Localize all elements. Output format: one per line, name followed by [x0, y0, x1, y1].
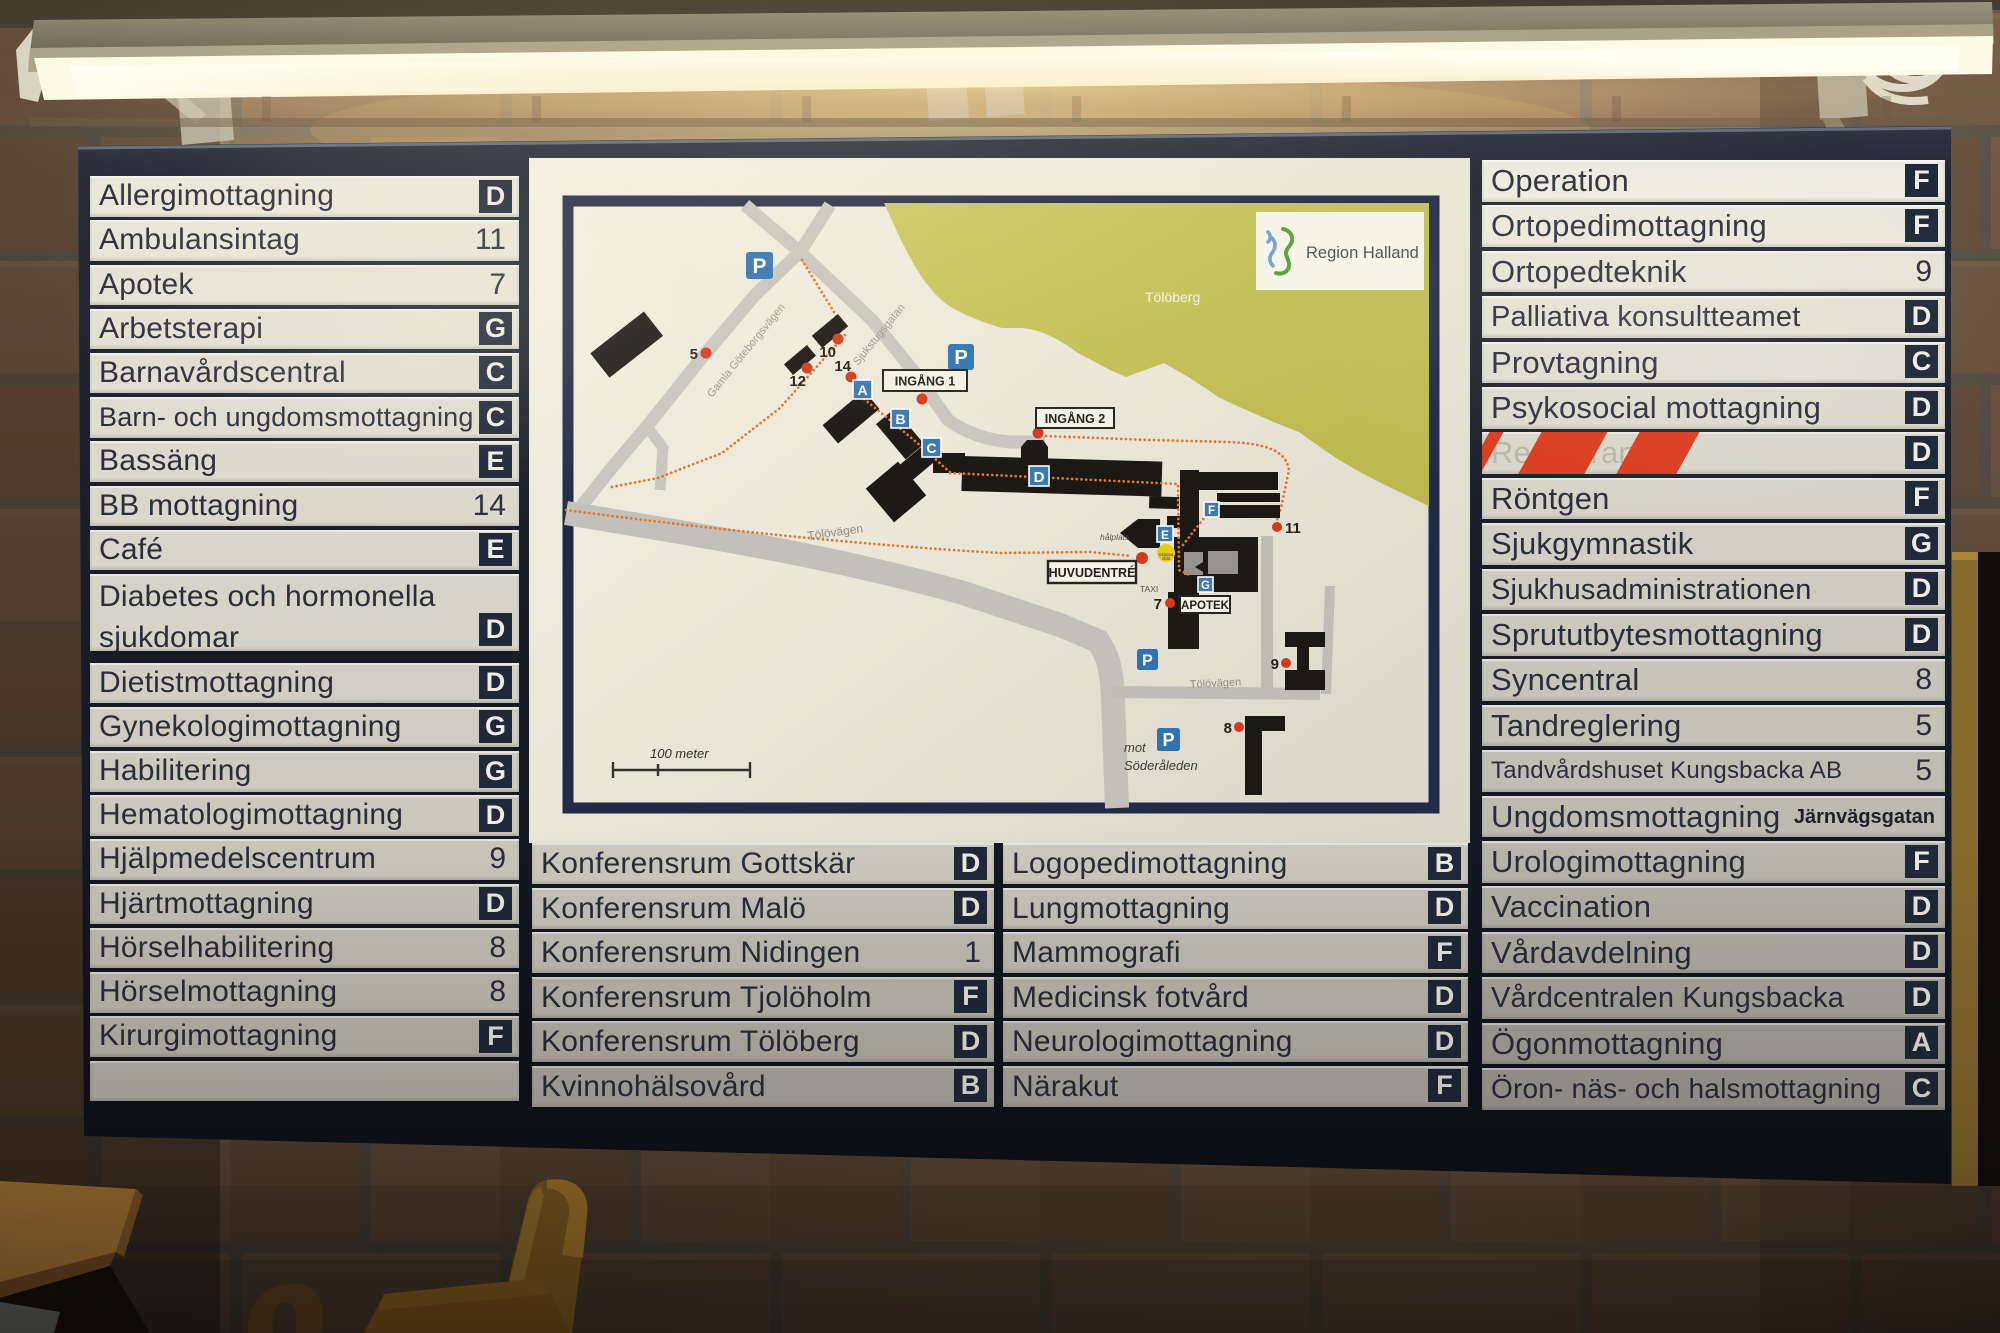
- svg-text:E: E: [1161, 528, 1169, 542]
- svg-text:P: P: [752, 255, 766, 278]
- svg-text:INGÅNG 1: INGÅNG 1: [895, 374, 955, 389]
- svg-text:P: P: [1162, 730, 1174, 750]
- svg-text:G: G: [1201, 580, 1210, 592]
- svg-text:11: 11: [1285, 520, 1301, 537]
- svg-text:F: F: [1208, 505, 1215, 517]
- svg-text:B: B: [895, 411, 905, 427]
- svg-text:9: 9: [1271, 656, 1279, 673]
- svg-text:12: 12: [789, 373, 806, 390]
- svg-text:mot: mot: [1124, 740, 1147, 755]
- svg-text:hålplats: hålplats: [1100, 532, 1130, 542]
- svg-text:7: 7: [1154, 596, 1162, 613]
- svg-text:TAXI: TAXI: [1140, 584, 1158, 594]
- svg-text:14: 14: [834, 358, 851, 375]
- svg-text:Tölöberg: Tölöberg: [1145, 289, 1200, 305]
- svg-text:Söderåleden: Söderåleden: [1124, 758, 1198, 773]
- svg-text:P: P: [954, 347, 967, 369]
- svg-text:Region Halland: Region Halland: [1306, 244, 1419, 262]
- svg-text:P: P: [1142, 653, 1153, 670]
- svg-text:C: C: [926, 440, 936, 456]
- svg-text:8: 8: [1224, 720, 1232, 737]
- svg-text:5: 5: [690, 346, 698, 363]
- svg-text:INGÅNG 2: INGÅNG 2: [1045, 411, 1105, 426]
- svg-text:100 meter: 100 meter: [650, 746, 709, 761]
- svg-text:D: D: [1034, 469, 1045, 486]
- svg-text:APOTEK: APOTEK: [1181, 600, 1230, 612]
- svg-text:A: A: [857, 382, 867, 398]
- svg-text:HUVUDENTRÉ: HUVUDENTRÉ: [1049, 565, 1136, 580]
